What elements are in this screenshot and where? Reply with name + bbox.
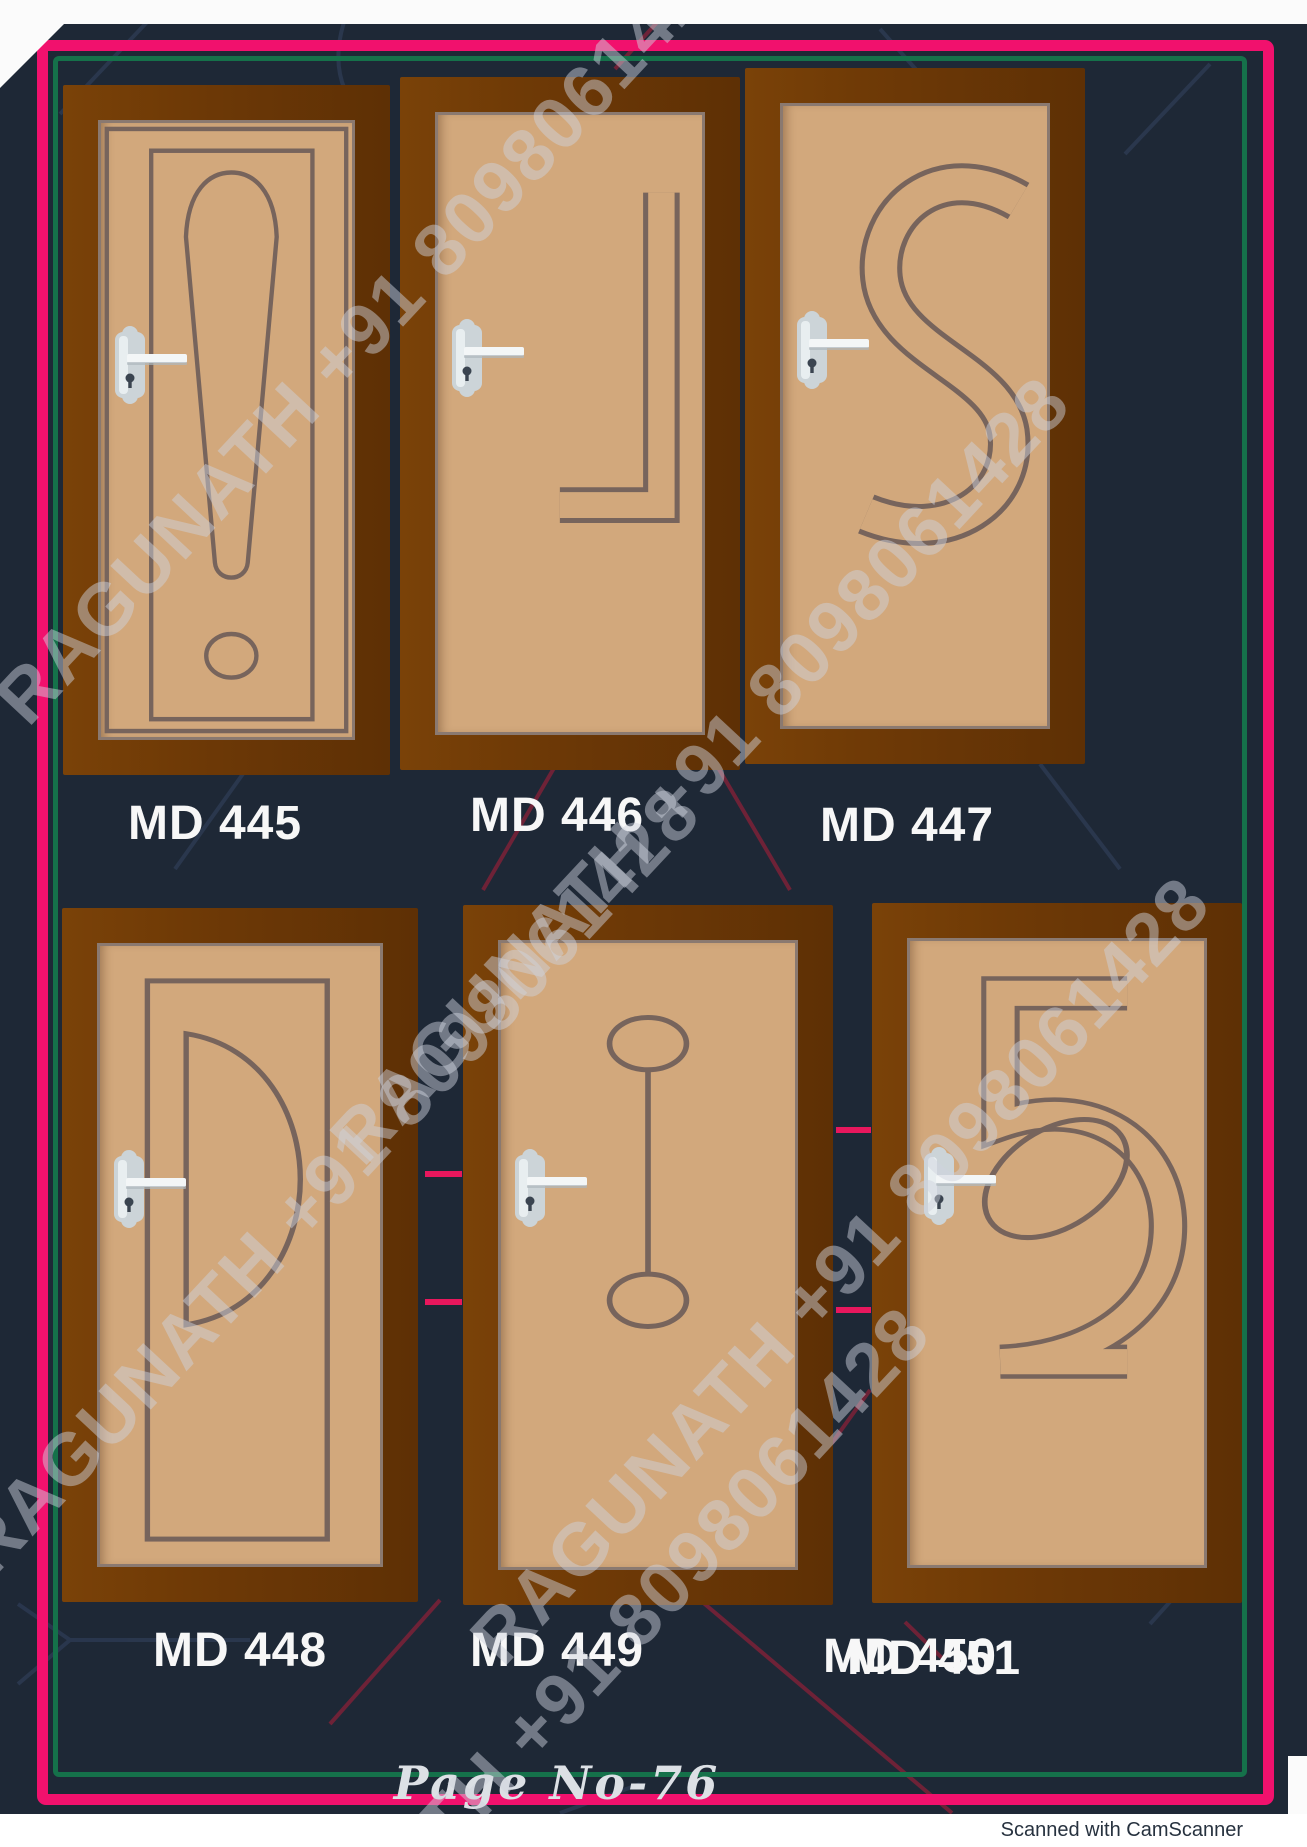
door-leaf: [780, 103, 1050, 729]
scanned-catalog-page: MD 445 MD 446 MD 447 MD 448 MD 449 MD 45…: [0, 0, 1307, 1847]
door-card-md448: [62, 908, 418, 1602]
door-card-md445: [63, 85, 390, 775]
door-handle-icon: [106, 1150, 192, 1230]
door-label-md448: MD 448: [70, 1623, 410, 1678]
camscanner-note: Scanned with CamScanner: [1001, 1819, 1243, 1842]
door-label-md450-overlapped: MD 451 MD 450: [740, 1629, 1080, 1684]
dark-page-background: MD 445 MD 446 MD 447 MD 448 MD 449 MD 45…: [0, 24, 1307, 1814]
door-label-md447: MD 447: [737, 798, 1077, 853]
scan-margin-top: [0, 0, 1307, 24]
door-handle-icon: [507, 1149, 593, 1229]
door-card-md450: [872, 903, 1242, 1603]
door-leaf: [98, 120, 355, 740]
curve-with-oval-groove-design: [910, 941, 1204, 1565]
scan-margin-right: [1288, 1756, 1307, 1814]
door-leaf: [907, 938, 1207, 1568]
door-handle-icon: [916, 1147, 1002, 1227]
door-label-md449: MD 449: [387, 1623, 727, 1678]
door-label-md446: MD 446: [387, 788, 727, 843]
s-shape-groove-design: [783, 106, 1047, 726]
door-handle-icon: [789, 311, 875, 391]
door-card-md446: [400, 77, 740, 770]
door-leaf: [498, 940, 798, 1570]
d-shape-groove-design: [100, 946, 380, 1564]
l-shape-groove-design: [438, 115, 702, 732]
scan-corner-wedge: [0, 24, 64, 88]
dumbbell-groove-design: [501, 943, 795, 1567]
page-number: Page No-76: [376, 1756, 738, 1814]
exclamation-groove-design: [101, 123, 352, 737]
door-label-md445: MD 445: [45, 796, 385, 851]
door-leaf: [435, 112, 705, 735]
door-label-base-text: MD 450: [823, 1630, 997, 1683]
door-leaf: [97, 943, 383, 1567]
door-handle-icon: [444, 319, 530, 399]
door-card-md449: [463, 905, 833, 1605]
door-handle-icon: [107, 326, 193, 406]
door-card-md447: [745, 68, 1085, 764]
